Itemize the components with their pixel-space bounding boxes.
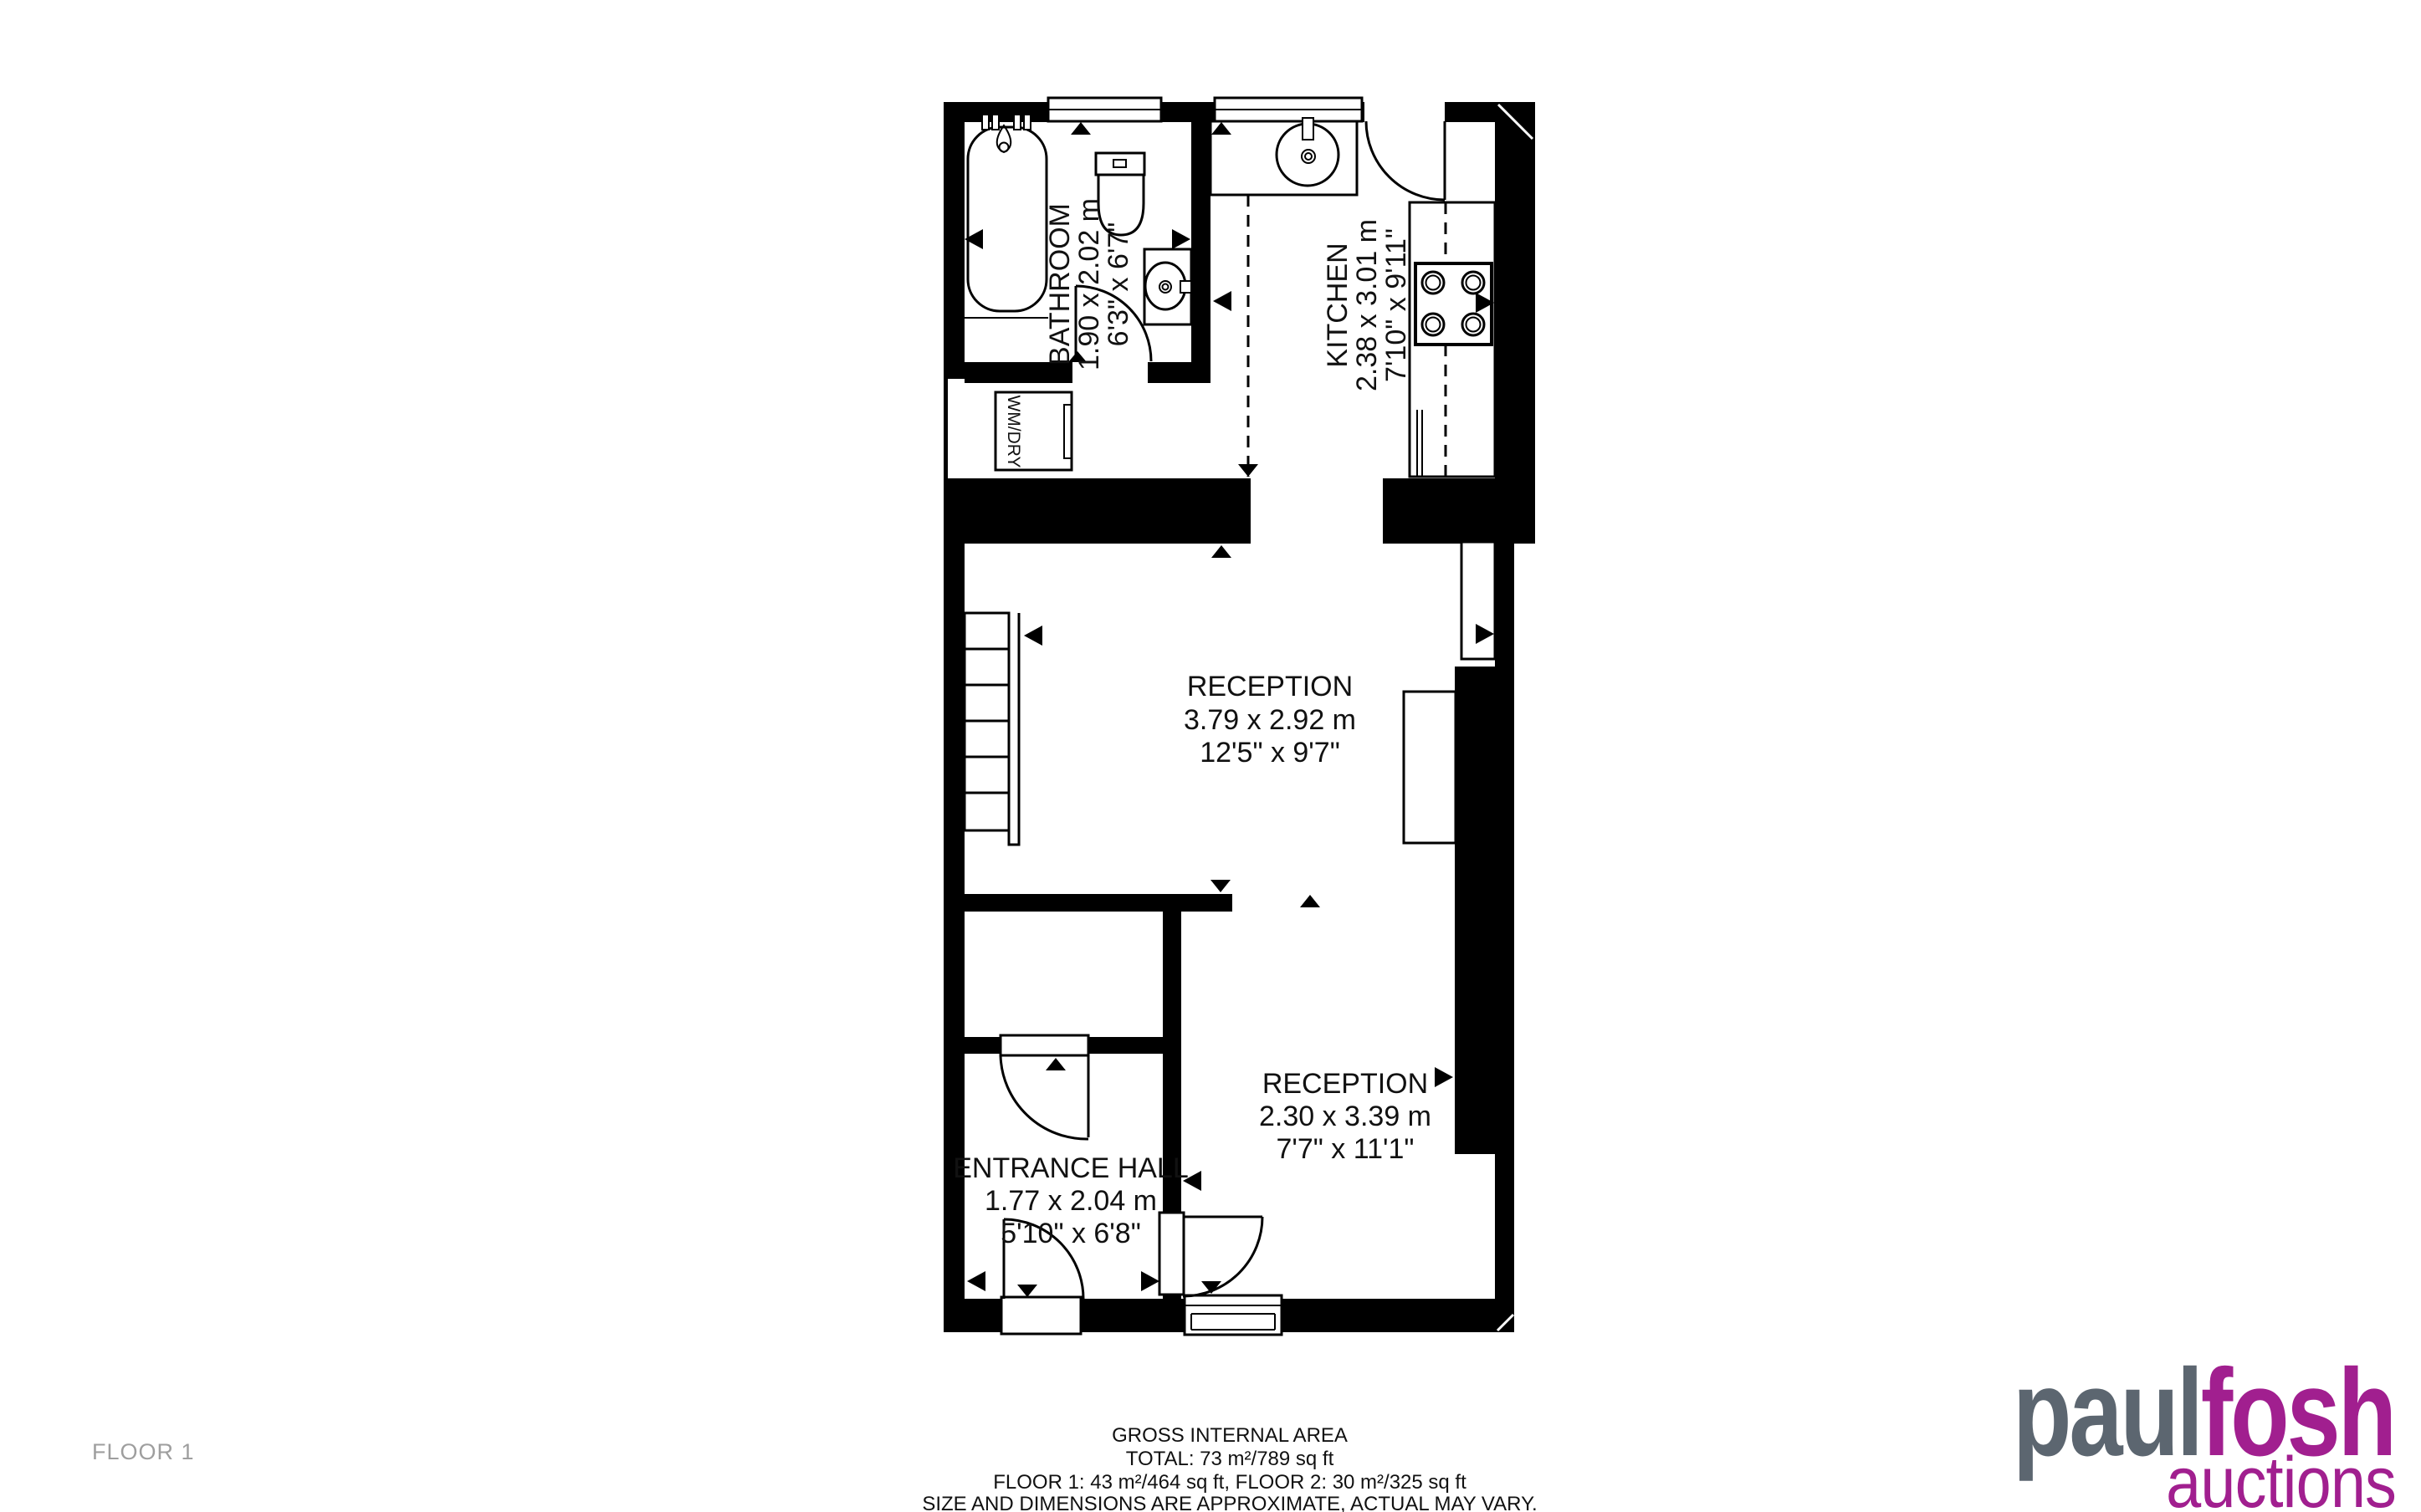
measure-arrow-icon bbox=[1238, 464, 1258, 477]
door-icon bbox=[1001, 1035, 1088, 1139]
measure-arrow-icon bbox=[1024, 626, 1042, 646]
room-name: RECEPTION bbox=[1187, 671, 1353, 702]
room-metric: 1.77 x 2.04 m bbox=[985, 1185, 1157, 1217]
room-name: RECEPTION bbox=[1262, 1068, 1428, 1100]
room-name: BATHROOM bbox=[1044, 203, 1076, 365]
sink-icon bbox=[1144, 249, 1191, 324]
window-icon bbox=[1048, 98, 1161, 121]
floor-label: FLOOR 1 bbox=[92, 1439, 195, 1464]
measure-arrow-icon bbox=[1435, 1067, 1453, 1087]
room-label-entrance-hall: ENTRANCE HALL 1.77 x 2.04 m 5'10" x 6'8" bbox=[953, 1152, 1189, 1249]
room-imperial: 7'10" x 9'11" bbox=[1380, 228, 1412, 382]
area-total: TOTAL: 73 m²/789 sq ft bbox=[1126, 1448, 1334, 1470]
floor-plan-svg: WM/DRY BATHROOM 1.90 x 2.0 bbox=[0, 0, 2421, 1512]
room-label-reception2: RECEPTION 2.30 x 3.39 m 7'7" x 11'1" bbox=[1259, 1068, 1431, 1165]
measure-arrow-icon bbox=[967, 1271, 985, 1291]
room-metric: 1.90 x 2.02 m bbox=[1073, 198, 1105, 370]
room-label-kitchen: KITCHEN 2.38 x 3.01 m 7'10" x 9'11" bbox=[1322, 219, 1412, 391]
bay-window-icon bbox=[1185, 1295, 1282, 1335]
washer-dryer-label: WM/DRY bbox=[1004, 395, 1023, 467]
room-metric: 3.79 x 2.92 m bbox=[1184, 704, 1356, 736]
room-label-reception1: RECEPTION 3.79 x 2.92 m 12'5" x 9'7" bbox=[1184, 671, 1356, 769]
logo-word-auctions: auctions bbox=[2166, 1443, 2396, 1512]
room-imperial: 5'10" x 6'8" bbox=[1001, 1218, 1141, 1249]
room-metric: 2.38 x 3.01 m bbox=[1351, 219, 1383, 391]
measure-arrow-icon bbox=[1172, 229, 1190, 249]
measure-arrow-icon bbox=[1017, 1285, 1037, 1297]
floorplan-page: WM/DRY BATHROOM 1.90 x 2.0 bbox=[0, 0, 2421, 1512]
measure-arrow-icon bbox=[1071, 122, 1091, 135]
gross-internal-area-note: GROSS INTERNAL AREA TOTAL: 73 m²/789 sq … bbox=[922, 1424, 1537, 1512]
measure-arrow-icon bbox=[1211, 545, 1231, 558]
measure-arrow-icon bbox=[1141, 1271, 1159, 1291]
room-metric: 2.30 x 3.39 m bbox=[1259, 1101, 1431, 1132]
measure-arrow-icon bbox=[1300, 895, 1320, 907]
measure-arrow-icon bbox=[1213, 291, 1231, 311]
measure-arrow-icon bbox=[1046, 1058, 1066, 1070]
bathtub-icon bbox=[965, 115, 1048, 318]
area-floors: FLOOR 1: 43 m²/464 sq ft, FLOOR 2: 30 m²… bbox=[993, 1471, 1466, 1494]
room-label-bathroom: BATHROOM 1.90 x 2.02 m 6'3" x 6'7" bbox=[1044, 198, 1134, 370]
room-imperial: 6'3" x 6'7" bbox=[1103, 222, 1134, 347]
room-name: ENTRANCE HALL bbox=[953, 1152, 1189, 1184]
kitchen-sink-icon bbox=[1210, 118, 1357, 195]
room-imperial: 12'5" x 9'7" bbox=[1200, 737, 1340, 769]
room-imperial: 7'7" x 11'1" bbox=[1276, 1133, 1414, 1165]
room-name: KITCHEN bbox=[1322, 243, 1354, 367]
washer-dryer-icon: WM/DRY bbox=[996, 392, 1072, 470]
staircase-icon bbox=[965, 613, 1019, 845]
paulfosh-auctions-logo: paulfosh auctions bbox=[2013, 1344, 2396, 1512]
window-icon bbox=[1215, 98, 1362, 121]
area-title: GROSS INTERNAL AREA bbox=[1112, 1424, 1348, 1447]
door-icon bbox=[1366, 121, 1445, 200]
chimney-recess-unit bbox=[1404, 692, 1456, 843]
window-icon bbox=[1461, 542, 1495, 659]
measure-arrow-icon bbox=[1210, 880, 1231, 892]
area-disclaimer: SIZE AND DIMENSIONS ARE APPROXIMATE, ACT… bbox=[922, 1493, 1537, 1512]
